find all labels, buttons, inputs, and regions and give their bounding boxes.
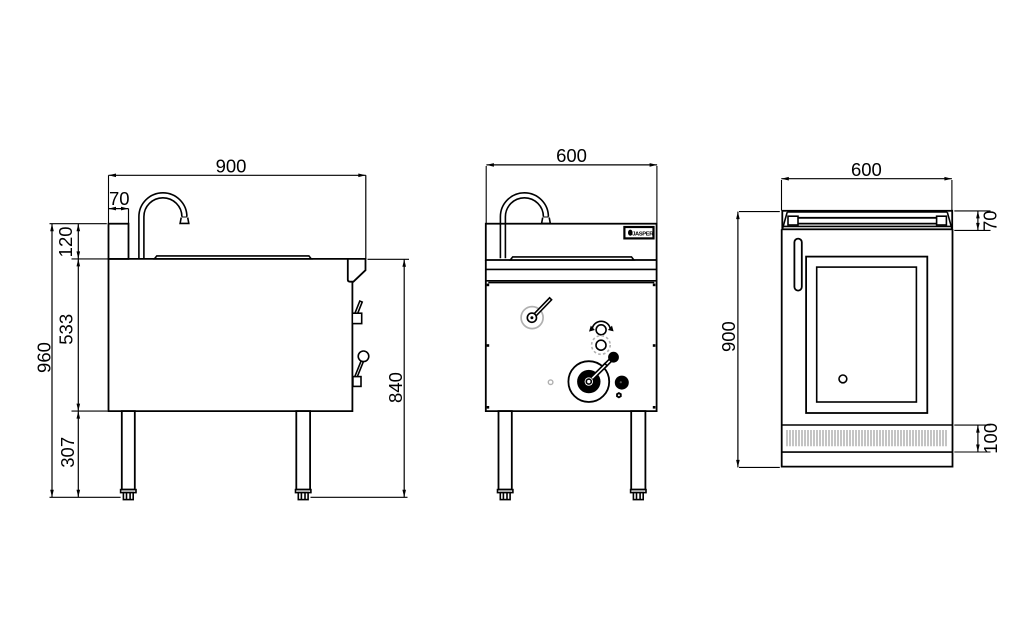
svg-text:533: 533	[55, 314, 76, 345]
svg-text:JASPER: JASPER	[632, 231, 654, 237]
svg-text:900: 900	[718, 321, 739, 352]
svg-text:600: 600	[556, 145, 587, 166]
svg-text:840: 840	[385, 372, 406, 403]
svg-text:307: 307	[57, 437, 78, 468]
svg-text:960: 960	[33, 342, 54, 373]
svg-text:70: 70	[109, 188, 130, 209]
svg-text:100: 100	[980, 423, 1001, 454]
svg-text:900: 900	[216, 156, 247, 177]
svg-text:120: 120	[55, 226, 76, 257]
svg-text:600: 600	[851, 159, 882, 180]
svg-text:70: 70	[980, 210, 1001, 231]
